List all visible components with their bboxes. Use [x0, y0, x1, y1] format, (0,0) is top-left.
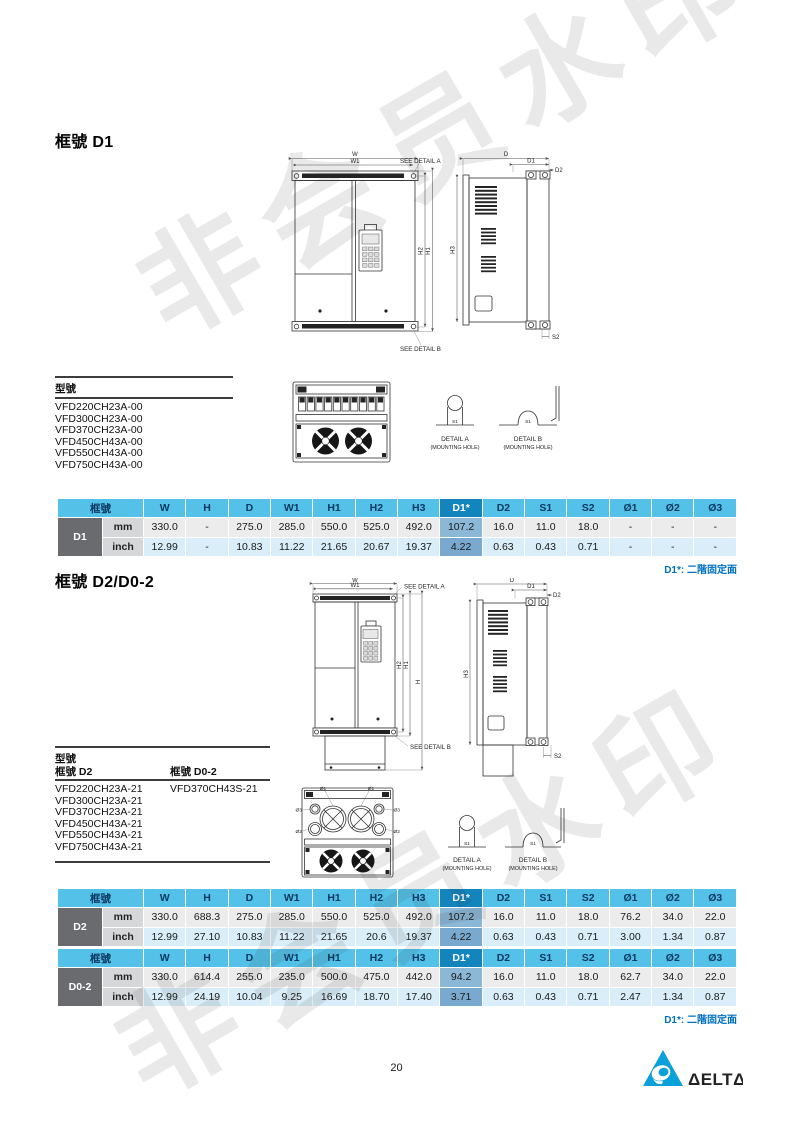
detail-b-title: DETAIL B: [519, 857, 547, 864]
table-value-cell: -: [610, 538, 651, 556]
table-column-header-cell: D1*: [440, 889, 481, 907]
table-column-header-cell: Ø3: [694, 949, 736, 967]
d2-table-note: D1*: 二階固定面: [457, 1011, 737, 1026]
table-column-header-cell: W: [144, 499, 185, 517]
detail-a-s1: S1: [452, 419, 458, 425]
d02-table-container: 框號WHDW1H1H2H3D1*D2S1S2Ø1Ø2Ø3D0-2mm330.06…: [57, 948, 737, 1007]
table-column-header-cell: Ø2: [652, 949, 693, 967]
table-column-header-cell: Ø1: [610, 889, 651, 907]
table-column-header-cell: D1*: [440, 949, 481, 967]
table-value-cell: -: [694, 538, 736, 556]
see-detail-a-label: SEE DETAIL A: [400, 158, 441, 165]
d1-keypad: [359, 225, 382, 272]
detail-a-title: DETAIL A: [453, 857, 481, 864]
table-frame-cell: D1: [58, 518, 102, 556]
dimension-table: 框號WHDW1H1H2H3D1*D2S1S2Ø1Ø2Ø3D0-2mm330.06…: [57, 948, 737, 1007]
table-value-cell: 285.0: [271, 908, 312, 926]
dia3-label: Ø3: [296, 808, 303, 814]
model-list-d2: VFD220CH23A-21VFD300CH23A-21VFD370CH23A-…: [55, 784, 143, 854]
table-value-cell: 18.0: [567, 518, 608, 536]
table-column-header-cell: W1: [271, 499, 312, 517]
table-column-header-cell: H: [186, 889, 227, 907]
dimension-table: 框號WHDW1H1H2H3D1*D2S1S2Ø1Ø2Ø3D1mm330.0-27…: [57, 498, 737, 557]
table-value-cell: 18.70: [356, 988, 397, 1006]
table-value-cell: 550.0: [313, 518, 354, 536]
table-column-header-cell: S1: [525, 949, 566, 967]
table-column-header-cell: D2: [483, 949, 524, 967]
dim-s2: S2: [554, 754, 562, 760]
dim-s2: S2: [552, 335, 560, 341]
table-column-header-cell: D: [229, 889, 270, 907]
table-value-cell: 0.43: [525, 538, 566, 556]
detail-b-title: DETAIL B: [514, 436, 542, 443]
dim-h1: H1: [404, 661, 410, 669]
dim-w1: W1: [351, 159, 361, 165]
dim-w: W: [352, 152, 358, 158]
table-value-cell: -: [694, 518, 736, 536]
table-unit-cell: inch: [103, 538, 143, 556]
table-column-header-cell: S2: [567, 889, 608, 907]
table-value-cell: -: [186, 518, 227, 536]
table-value-cell: 0.63: [483, 538, 524, 556]
table-value-cell: 330.0: [144, 518, 185, 536]
table-column-header-cell: W: [144, 889, 185, 907]
dim-d1: D1: [527, 584, 535, 590]
dia2-label: Ø2: [394, 829, 401, 835]
table-column-header-cell: S2: [567, 949, 608, 967]
table-value-cell: 11.0: [525, 518, 566, 536]
model-list-d02: VFD370CH43S-21: [170, 784, 258, 796]
table-value-cell: 27.10: [186, 928, 227, 946]
table-column-header-cell: H3: [398, 889, 439, 907]
table-column-header-cell: S1: [525, 499, 566, 517]
d2-bottom-view: Ø1 Ø1 Ø3 Ø3 Ø2 Ø2: [296, 786, 401, 877]
table-value-cell: 16.0: [483, 908, 524, 926]
table-value-cell: 34.0: [652, 968, 693, 986]
table-value-cell: 12.99: [144, 928, 185, 946]
table-column-header-cell: D: [229, 949, 270, 967]
table-value-cell: 16.69: [313, 988, 354, 1006]
dim-h3: H3: [451, 246, 457, 254]
model-list-d1: VFD220CH23A-00VFD300CH23A-00VFD370CH23A-…: [55, 402, 143, 472]
table-value-cell: 475.0: [356, 968, 397, 986]
table-column-header-cell: H1: [313, 499, 354, 517]
table-value-cell: 550.0: [313, 908, 354, 926]
cooling-fan: [320, 850, 343, 873]
table-value-cell: 21.65: [313, 928, 354, 946]
dim-w1: W1: [351, 583, 361, 589]
table-column-header-cell: W: [144, 949, 185, 967]
table-column-header-cell: Ø2: [652, 499, 693, 517]
table-value-cell: 76.2: [610, 908, 651, 926]
table-value-cell: 525.0: [356, 908, 397, 926]
table-value-cell: 12.99: [144, 538, 185, 556]
table-unit-cell: inch: [103, 988, 143, 1006]
model-list-d02-header: 框號 D0-2: [170, 764, 217, 779]
detail-b-s1: S1: [525, 419, 531, 425]
table-value-cell: 275.0: [229, 518, 270, 536]
d1-bottom-view: [293, 382, 390, 462]
table-value-cell: 20.67: [356, 538, 397, 556]
table-column-header-cell: H1: [313, 949, 354, 967]
see-detail-a-label: SEE DETAIL A: [404, 584, 445, 591]
table-column-header-cell: D2: [483, 889, 524, 907]
detail-b-drawing: S1 DETAIL B (MOUNTING HOLE): [499, 386, 559, 451]
delta-logo: ΔELTΔ: [641, 1046, 743, 1094]
model-item: VFD370CH43S-21: [170, 784, 258, 796]
detail-b-subtitle: (MOUNTING HOLE): [503, 445, 552, 451]
table-value-cell: 94.2: [440, 968, 481, 986]
table-value-cell: 21.65: [313, 538, 354, 556]
dim-h: H: [416, 680, 422, 684]
see-detail-b-label: SEE DETAIL B: [400, 346, 441, 353]
table-value-cell: 492.0: [398, 518, 439, 536]
table-value-cell: 614.4: [186, 968, 227, 986]
table-value-cell: 0.71: [567, 988, 608, 1006]
table-value-cell: 3.00: [610, 928, 651, 946]
table-value-cell: 2.47: [610, 988, 651, 1006]
dim-h1: H1: [426, 247, 432, 255]
table-value-cell: 4.22: [440, 928, 481, 946]
table-column-header-cell: Ø3: [694, 499, 736, 517]
dim-d2: D2: [553, 593, 561, 599]
table-frame-cell: D2: [58, 908, 102, 946]
frame-d2-bottom-view-and-details: Ø1 Ø1 Ø3 Ø3 Ø2 Ø2: [295, 783, 595, 883]
model-item: VFD220CH23A-00: [55, 402, 143, 414]
model-item: VFD220CH23A-21: [55, 784, 143, 796]
d2-vent-louvers: [488, 610, 508, 692]
table-value-cell: 0.63: [483, 988, 524, 1006]
detail-b-s1: S1: [530, 841, 536, 847]
table-unit-cell: mm: [103, 518, 143, 536]
table-column-header-cell: W1: [271, 949, 312, 967]
table-value-cell: 18.0: [567, 968, 608, 986]
table-column-header-cell: S2: [567, 499, 608, 517]
table-value-cell: 16.0: [483, 518, 524, 536]
table-value-cell: 525.0: [356, 518, 397, 536]
conduit-knockouts: [309, 804, 386, 836]
table-column-header-cell: D: [229, 499, 270, 517]
table-value-cell: 0.63: [483, 928, 524, 946]
dia1-label: Ø1: [320, 786, 327, 792]
table-value-cell: 34.0: [652, 908, 693, 926]
d1-front-view: W W1 H2: [292, 152, 441, 353]
table-value-cell: 235.0: [271, 968, 312, 986]
table-column-header-cell: H: [186, 949, 227, 967]
d1-table-container: 框號WHDW1H1H2H3D1*D2S1S2Ø1Ø2Ø3D1mm330.0-27…: [57, 498, 737, 557]
see-detail-b-label: SEE DETAIL B: [410, 744, 451, 751]
dim-d: D: [510, 578, 515, 584]
table-column-header-cell: D2: [483, 499, 524, 517]
table-column-header-cell: H1: [313, 889, 354, 907]
table-value-cell: 0.43: [525, 928, 566, 946]
table-unit-cell: mm: [103, 908, 143, 926]
model-list-rule: [55, 397, 233, 399]
table-value-cell: 255.0: [229, 968, 270, 986]
section2-title: 框號 D2/D0-2: [55, 568, 154, 592]
section1-title: 框號 D1: [55, 128, 113, 152]
delta-triangle-icon: [643, 1050, 683, 1086]
table-value-cell: -: [610, 518, 651, 536]
d2-table-container: 框號WHDW1H1H2H3D1*D2S1S2Ø1Ø2Ø3D2mm330.0688…: [57, 888, 737, 947]
table-value-cell: 4.22: [440, 538, 481, 556]
table-value-cell: 11.22: [271, 538, 312, 556]
d1-table-note: D1*: 二階固定面: [457, 561, 737, 576]
frame-d1-bottom-view-and-details: S1 DETAIL A (MOUNTING HOLE) S1 DETAIL B …: [285, 378, 585, 473]
table-frame-cell: D0-2: [58, 968, 102, 1006]
table-value-cell: 330.0: [144, 968, 185, 986]
table-value-cell: 107.2: [440, 518, 481, 536]
frame-d1-dimension-drawing: W W1 H2: [285, 150, 585, 355]
table-value-cell: 0.87: [694, 928, 736, 946]
table-frame-header-cell: 框號: [58, 499, 143, 517]
table-value-cell: 688.3: [186, 908, 227, 926]
dim-d1: D1: [527, 159, 535, 165]
table-column-header-cell: W1: [271, 889, 312, 907]
dim-h3: H3: [464, 670, 470, 678]
dim-h2: H2: [419, 247, 425, 255]
table-value-cell: 1.34: [652, 988, 693, 1006]
table-value-cell: 0.87: [694, 988, 736, 1006]
dia1-label: Ø1: [368, 786, 375, 792]
dim-h2: H2: [397, 661, 403, 669]
table-column-header-cell: H2: [356, 889, 397, 907]
table-column-header-cell: D1*: [440, 499, 481, 517]
model-list-d2-header: 框號 D2: [55, 764, 92, 779]
table-value-cell: 107.2: [440, 908, 481, 926]
table-value-cell: 285.0: [271, 518, 312, 536]
cooling-fan: [345, 428, 372, 455]
detail-b-drawing: S1 DETAIL B (MOUNTING HOLE): [505, 808, 564, 872]
dia2-label: Ø2: [296, 829, 303, 835]
d1-vent-louvers: [475, 186, 497, 272]
table-unit-cell: inch: [103, 928, 143, 946]
table-value-cell: 3.71: [440, 988, 481, 1006]
table-value-cell: 11.22: [271, 928, 312, 946]
detail-a-subtitle: (MOUNTING HOLE): [442, 866, 491, 872]
dimension-table: 框號WHDW1H1H2H3D1*D2S1S2Ø1Ø2Ø3D2mm330.0688…: [57, 888, 737, 947]
d2-side-view: D D1 D2 H3 S2: [464, 578, 562, 776]
table-value-cell: 22.0: [694, 968, 736, 986]
detail-a-drawing: S1 DETAIL A (MOUNTING HOLE): [442, 816, 491, 873]
detail-b-subtitle: (MOUNTING HOLE): [508, 866, 557, 872]
table-value-cell: -: [652, 538, 693, 556]
model-list-rule: [55, 861, 270, 863]
model-list-header: 型號: [55, 381, 76, 396]
model-list-rule: [55, 376, 233, 378]
detail-a-drawing: S1 DETAIL A (MOUNTING HOLE): [430, 396, 479, 452]
table-value-cell: 0.43: [525, 988, 566, 1006]
table-value-cell: 275.0: [229, 908, 270, 926]
table-column-header-cell: H2: [356, 949, 397, 967]
table-value-cell: 11.0: [525, 968, 566, 986]
d2-front-view: W W1 H: [313, 578, 451, 770]
table-value-cell: 19.37: [398, 538, 439, 556]
table-frame-header-cell: 框號: [58, 949, 143, 967]
table-value-cell: 17.40: [398, 988, 439, 1006]
table-value-cell: 20.6: [356, 928, 397, 946]
model-list-rule: [55, 779, 270, 781]
model-item: VFD750CH43A-21: [55, 842, 143, 854]
table-value-cell: 10.04: [229, 988, 270, 1006]
table-column-header-cell: H2: [356, 499, 397, 517]
table-value-cell: 500.0: [313, 968, 354, 986]
table-value-cell: 24.19: [186, 988, 227, 1006]
table-value-cell: -: [186, 538, 227, 556]
table-value-cell: 0.71: [567, 538, 608, 556]
cooling-fan: [352, 850, 375, 873]
table-value-cell: 10.83: [229, 928, 270, 946]
d2-keypad: [361, 621, 381, 662]
dia3-label: Ø3: [394, 808, 401, 814]
table-frame-header-cell: 框號: [58, 889, 143, 907]
table-column-header-cell: Ø2: [652, 889, 693, 907]
table-value-cell: 9.25: [271, 988, 312, 1006]
table-unit-cell: mm: [103, 968, 143, 986]
dim-d: D: [504, 152, 509, 158]
table-value-cell: 492.0: [398, 908, 439, 926]
delta-wordmark: ΔELTΔ: [688, 1070, 743, 1089]
table-value-cell: 22.0: [694, 908, 736, 926]
table-column-header-cell: Ø3: [694, 889, 736, 907]
table-value-cell: 19.37: [398, 928, 439, 946]
table-column-header-cell: Ø1: [610, 949, 651, 967]
dim-d2: D2: [555, 168, 563, 174]
table-value-cell: 330.0: [144, 908, 185, 926]
table-value-cell: 11.0: [525, 908, 566, 926]
manual-page: 非会员水印 非会员水印 框號 D1 W W1: [0, 0, 793, 1122]
terminal-strip: [299, 397, 385, 411]
model-item: VFD750CH43A-00: [55, 460, 143, 472]
table-value-cell: 16.0: [483, 968, 524, 986]
detail-a-title: DETAIL A: [441, 436, 469, 443]
table-value-cell: -: [652, 518, 693, 536]
frame-d2-dimension-drawing: W W1 H: [300, 578, 590, 783]
table-value-cell: 10.83: [229, 538, 270, 556]
cooling-fan: [312, 428, 339, 455]
table-column-header-cell: S1: [525, 889, 566, 907]
table-value-cell: 442.0: [398, 968, 439, 986]
detail-a-subtitle: (MOUNTING HOLE): [430, 445, 479, 451]
table-value-cell: 1.34: [652, 928, 693, 946]
d1-side-view: D D1 D2 H3 S2: [451, 152, 564, 341]
table-value-cell: 62.7: [610, 968, 651, 986]
detail-a-s1: S1: [464, 841, 470, 847]
table-value-cell: 0.71: [567, 928, 608, 946]
table-column-header-cell: H3: [398, 499, 439, 517]
table-column-header-cell: Ø1: [610, 499, 651, 517]
model-list-rule: [55, 746, 270, 748]
table-column-header-cell: H: [186, 499, 227, 517]
table-value-cell: 12.99: [144, 988, 185, 1006]
table-column-header-cell: H3: [398, 949, 439, 967]
table-value-cell: 18.0: [567, 908, 608, 926]
